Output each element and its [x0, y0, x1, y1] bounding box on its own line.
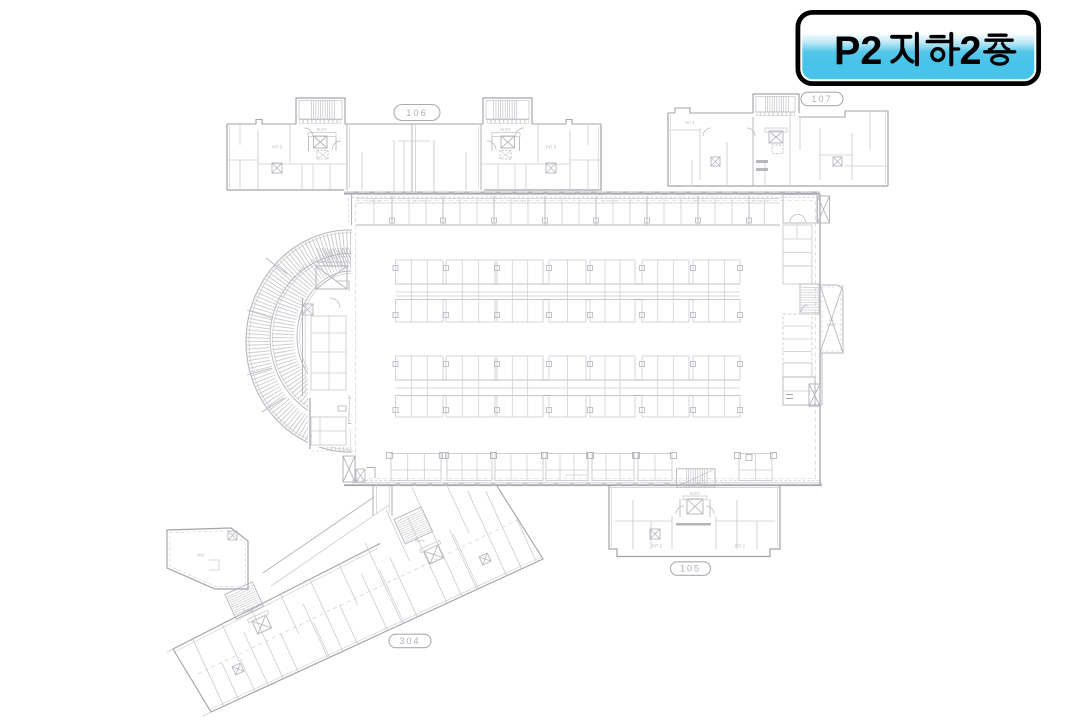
svg-text:PIT: PIT [198, 553, 205, 558]
svg-text:107: 107 [811, 94, 832, 104]
svg-text:ELEV.: ELEV. [690, 492, 700, 496]
svg-text:-CO: -CO [828, 318, 834, 322]
svg-text:105: 105 [680, 564, 701, 574]
svg-text:ELEV.: ELEV. [501, 127, 512, 132]
svg-text:PIT 2: PIT 2 [735, 544, 746, 549]
svg-text:ELEV.: ELEV. [317, 127, 328, 132]
svg-text:ELEV.: ELEV. [415, 539, 425, 543]
svg-text:PIT 3: PIT 3 [546, 145, 557, 150]
svg-text:PIT 3: PIT 3 [272, 145, 283, 150]
svg-text:RAMP: RAMP [826, 323, 835, 327]
svg-text:PIT 2: PIT 2 [652, 544, 663, 549]
svg-text:↗: ↗ [309, 434, 312, 439]
svg-text:ELEV.: ELEV. [243, 609, 253, 613]
svg-text:304: 304 [399, 636, 420, 646]
svg-text:P2: P2 [834, 29, 882, 73]
svg-text:2: 2 [960, 29, 982, 73]
svg-text:PIT 3: PIT 3 [685, 121, 694, 125]
svg-text:106: 106 [406, 108, 428, 119]
